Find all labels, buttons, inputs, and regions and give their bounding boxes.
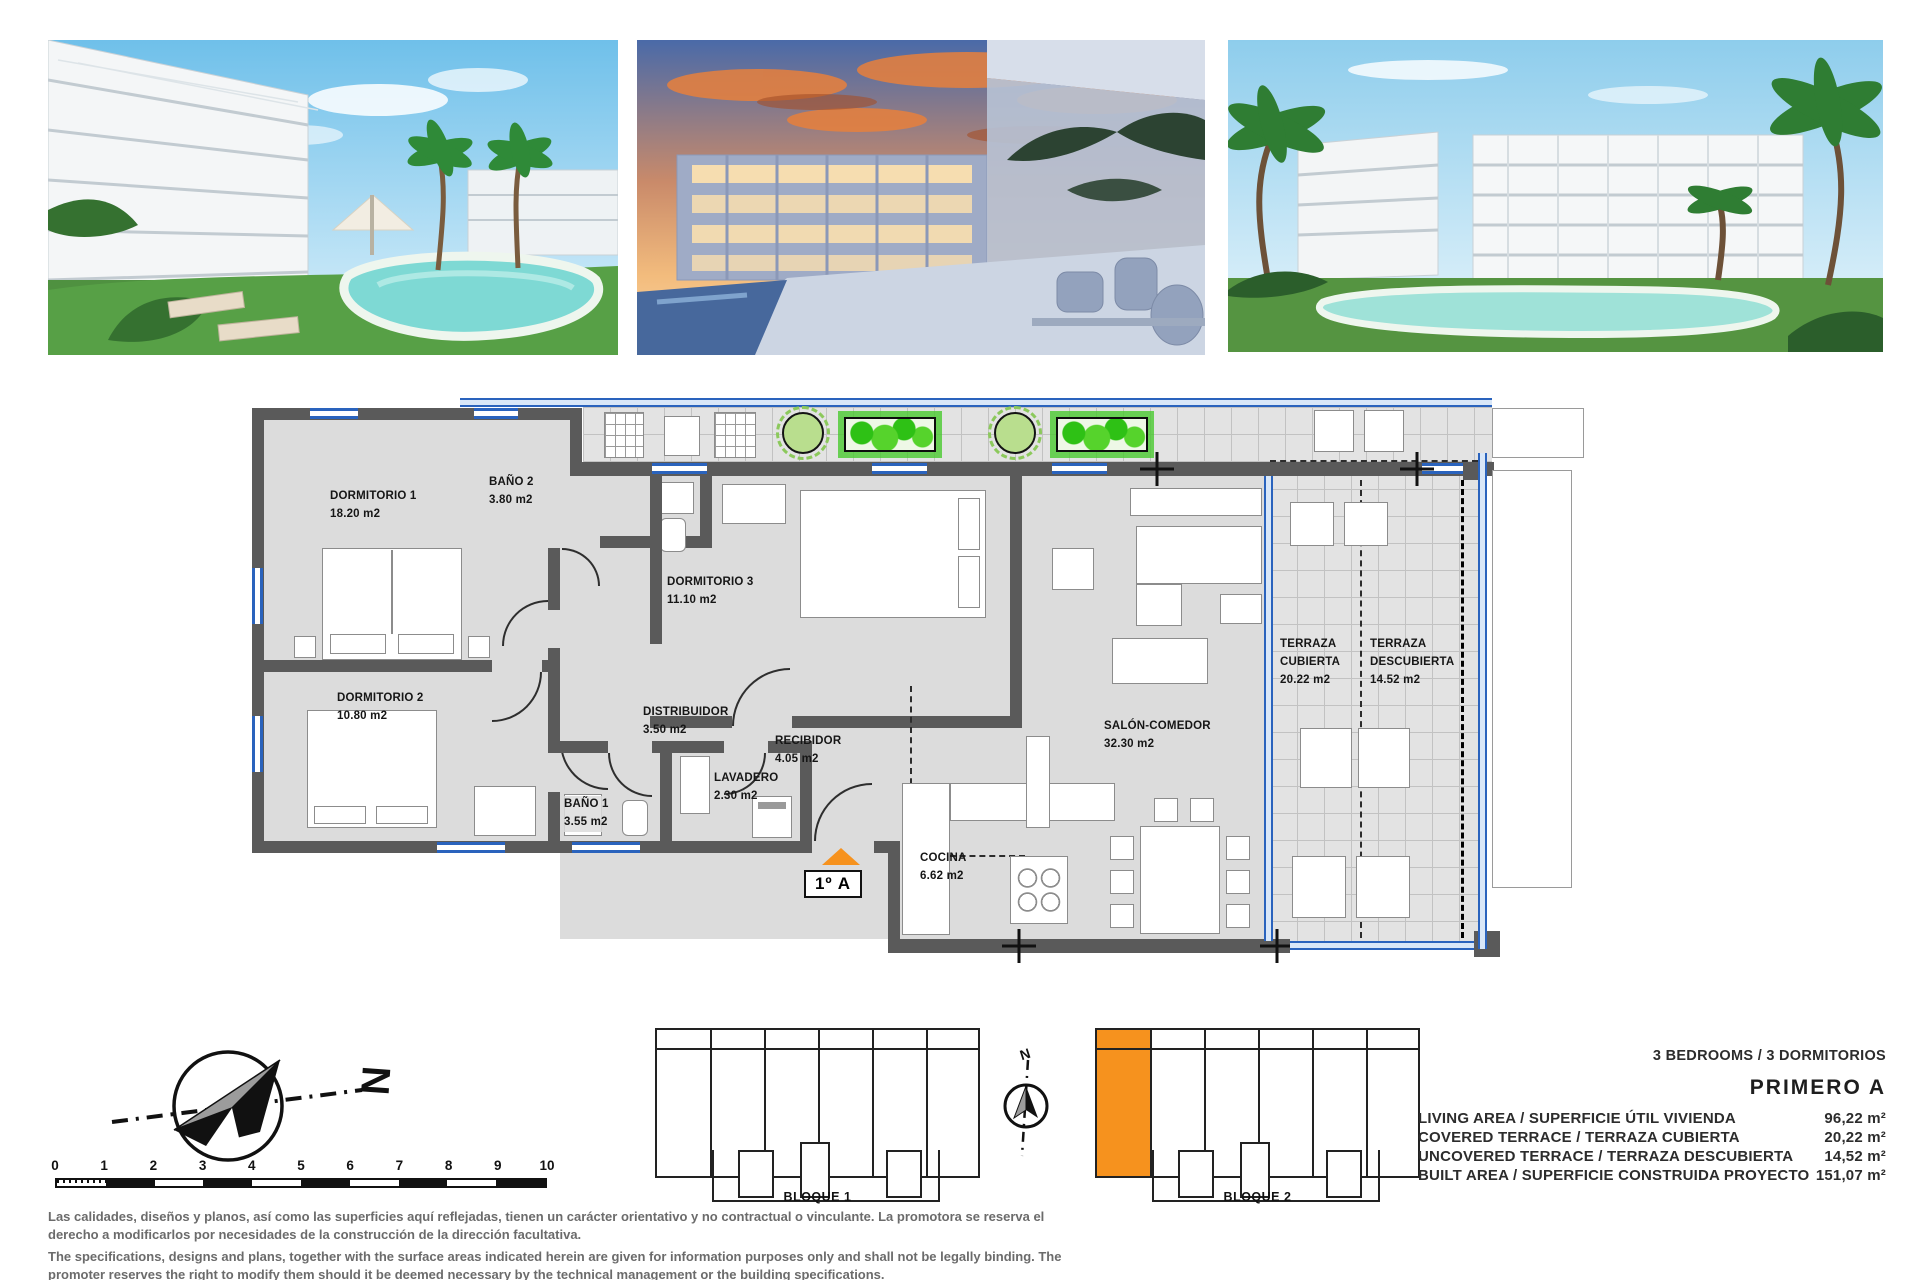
room-name: BAÑO 2 xyxy=(489,474,534,492)
window xyxy=(652,463,707,474)
wall-bath1-top xyxy=(548,741,608,753)
scale-bar-minor-ticks xyxy=(57,1180,106,1183)
tv-bench xyxy=(1026,736,1050,828)
specs-bedrooms-line: 3 BEDROOMS / 3 DORMITORIOS xyxy=(1418,1048,1886,1064)
room-area: 14.52 m2 xyxy=(1370,672,1454,690)
small-compass: N xyxy=(1002,1048,1050,1163)
room-label-recibidor: RECIBIDOR 4.05 m2 xyxy=(775,733,841,769)
column-marker xyxy=(1002,929,1036,963)
sofa-chaise xyxy=(1136,584,1182,626)
scale-tick: 2 xyxy=(150,1158,158,1173)
room-name-line2: CUBIERTA xyxy=(1280,654,1340,672)
room-name: DISTRIBUIDOR xyxy=(643,704,728,722)
photo-terrace-dusk-art xyxy=(637,40,1205,355)
dining-table xyxy=(1140,826,1220,934)
window xyxy=(474,408,518,419)
room-area: 18.20 m2 xyxy=(330,506,417,524)
terrace-table-set xyxy=(1300,728,1352,788)
wall-left xyxy=(252,408,264,853)
laundry-sink xyxy=(680,756,710,814)
room-name: TERRAZA xyxy=(1280,636,1340,654)
scale-tick: 5 xyxy=(297,1158,305,1173)
scale-bar-segment xyxy=(496,1180,545,1186)
room-name: BAÑO 1 xyxy=(564,796,609,814)
pillow xyxy=(958,556,980,608)
room-name: DORMITORIO 1 xyxy=(330,488,417,506)
pillow xyxy=(398,634,454,654)
dining-chair xyxy=(1154,798,1178,822)
scale-tick: 3 xyxy=(199,1158,207,1173)
terrace-lounger xyxy=(1356,856,1410,918)
legal-disclaimer: Las calidades, diseños y planos, así com… xyxy=(48,1208,1096,1280)
plant-pot xyxy=(994,412,1036,454)
vent-window xyxy=(572,842,640,853)
room-area: 4.05 m2 xyxy=(775,751,841,769)
wall-step xyxy=(570,408,582,476)
floor-plan: 1º A DORMITORIO 1 18.20 m2 xyxy=(252,398,1712,976)
scale-bar-segment xyxy=(106,1180,155,1186)
unit-label-box: 1º A xyxy=(804,870,862,898)
room-label-distribuidor: DISTRIBUIDOR 3.50 m2 xyxy=(643,704,728,740)
wall-kitchen-left xyxy=(888,841,900,953)
wardrobe-dorm2 xyxy=(474,786,536,836)
coffee-table xyxy=(1112,638,1208,684)
window xyxy=(1052,463,1107,474)
dining-chair xyxy=(1110,870,1134,894)
photo-terrace-dusk xyxy=(637,40,1205,355)
wall-bath2-right xyxy=(700,476,712,548)
dining-chair xyxy=(1226,904,1250,928)
terrace-chair xyxy=(1290,502,1334,546)
room-label-dormitorio1: DORMITORIO 1 18.20 m2 xyxy=(330,488,417,524)
terrace-chair xyxy=(1364,410,1404,452)
room-area: 6.62 m2 xyxy=(920,868,967,886)
block2-highlighted-unit xyxy=(1097,1030,1150,1176)
terrace-lounger xyxy=(1292,856,1346,918)
nightstand xyxy=(468,636,490,658)
scale-bar-track xyxy=(55,1178,547,1188)
nightstand xyxy=(294,636,316,658)
wall-dorm3-left xyxy=(650,476,662,644)
disclaimer-en: The specifications, designs and plans, t… xyxy=(48,1248,1096,1280)
armchair xyxy=(1052,548,1094,590)
wall-bottom-salon xyxy=(888,939,1290,953)
photo-pool-garden-day xyxy=(48,40,618,355)
scale-tick: 9 xyxy=(494,1158,502,1173)
specs-unit-title: PRIMERO A xyxy=(1418,1076,1886,1100)
wall-corridor-lower xyxy=(548,792,560,841)
room-label-terraza-cubierta: TERRAZA CUBIERTA 20.22 m2 xyxy=(1280,636,1340,689)
wall-lav-top xyxy=(672,741,724,753)
side-table xyxy=(1220,594,1262,624)
dining-chair xyxy=(1226,836,1250,860)
sideboard xyxy=(1130,488,1262,516)
room-name: RECIBIDOR xyxy=(775,733,841,751)
spec-label: COVERED TERRACE / TERRAZA CUBIERTA xyxy=(1418,1129,1740,1146)
room-area: 11.10 m2 xyxy=(667,592,754,610)
salon-glass-wall xyxy=(1264,476,1273,941)
sun-lounger xyxy=(604,412,644,458)
window xyxy=(252,716,263,772)
spec-row-covered-terrace: COVERED TERRACE / TERRAZA CUBIERTA 20,22… xyxy=(1418,1129,1886,1146)
compass-rose-art xyxy=(110,1020,390,1170)
planter-box xyxy=(844,417,936,452)
scale-tick: 4 xyxy=(248,1158,256,1173)
room-name-line2: DESCUBIERTA xyxy=(1370,654,1454,672)
room-area: 3.55 m2 xyxy=(564,814,609,832)
window xyxy=(310,408,358,419)
spec-label: LIVING AREA / SUPERFICIE ÚTIL VIVIENDA xyxy=(1418,1110,1736,1127)
room-area: 3.50 m2 xyxy=(643,722,728,740)
wall-dorm3-bottom xyxy=(792,716,1022,728)
window xyxy=(252,568,263,624)
block1-label: BLOQUE 1 xyxy=(655,1190,980,1204)
balcony-glass-top xyxy=(460,398,1492,407)
wall-top-left-wing xyxy=(252,408,582,420)
room-label-dormitorio3: DORMITORIO 3 11.10 m2 xyxy=(667,574,754,610)
room-area: 2.30 m2 xyxy=(714,788,778,806)
wall-corridor-upper xyxy=(548,648,560,672)
room-name: COCINA xyxy=(920,850,967,868)
bath1-sink xyxy=(622,800,648,836)
compass-rose: N xyxy=(110,1020,390,1175)
window xyxy=(872,463,927,474)
wall-dorm1-dorm2 xyxy=(264,660,492,672)
bed-split-line xyxy=(391,550,393,634)
spec-value: 151,07 m² xyxy=(1816,1167,1886,1184)
photo-buildings-pool-day-art xyxy=(1228,40,1883,352)
scale-bar-segment xyxy=(203,1180,252,1186)
scale-bar-segment xyxy=(301,1180,350,1186)
disclaimer-es: Las calidades, diseños y planos, así com… xyxy=(48,1208,1096,1245)
scale-tick: 8 xyxy=(445,1158,453,1173)
spec-value: 96,22 m² xyxy=(1824,1110,1886,1127)
wall-top-main xyxy=(582,462,1494,476)
room-label-bano2: BAÑO 2 3.80 m2 xyxy=(489,474,534,510)
spec-row-living-area: LIVING AREA / SUPERFICIE ÚTIL VIVIENDA 9… xyxy=(1418,1110,1886,1127)
terrace-chair xyxy=(1344,502,1388,546)
adjacent-structure xyxy=(1492,470,1572,888)
spec-row-uncovered-terrace: UNCOVERED TERRACE / TERRAZA DESCUBIERTA … xyxy=(1418,1148,1886,1165)
photo-buildings-pool-day xyxy=(1228,40,1883,352)
room-label-bano1: BAÑO 1 3.55 m2 xyxy=(564,796,609,832)
terrace-edge-dashed xyxy=(1461,480,1464,938)
bath2-toilet xyxy=(660,518,686,552)
dining-chair xyxy=(1226,870,1250,894)
room-label-dormitorio2: DORMITORIO 2 10.80 m2 xyxy=(337,690,424,726)
spec-label: UNCOVERED TERRACE / TERRAZA DESCUBIERTA xyxy=(1418,1148,1793,1165)
dining-chair xyxy=(1110,836,1134,860)
spec-row-built-area: BUILT AREA / SUPERFICIE CONSTRUIDA PROYE… xyxy=(1418,1167,1886,1184)
room-label-salon: SALÓN-COMEDOR 32.30 m2 xyxy=(1104,718,1211,754)
room-label-cocina: COCINA 6.62 m2 xyxy=(920,850,967,886)
sun-lounger xyxy=(714,412,756,458)
scale-tick: 10 xyxy=(539,1158,554,1173)
dining-chair xyxy=(1110,904,1134,928)
terrace-glass-bottom xyxy=(1290,941,1480,950)
entrance-triangle xyxy=(822,848,860,865)
photo-pool-garden-day-art xyxy=(48,40,618,355)
column-marker xyxy=(1400,452,1434,486)
small-compass-art xyxy=(1002,1048,1050,1158)
dining-chair xyxy=(1190,798,1214,822)
wall-corridor-upper xyxy=(548,548,560,610)
room-name: DORMITORIO 2 xyxy=(337,690,424,708)
pillow xyxy=(330,634,386,654)
terrace-table xyxy=(664,416,700,456)
spec-value: 14,52 m² xyxy=(1824,1148,1886,1165)
room-label-lavadero: LAVADERO 2.30 m2 xyxy=(714,770,778,806)
room-area: 10.80 m2 xyxy=(337,708,424,726)
wall-bottom-bedrooms xyxy=(252,841,812,853)
wall-corridor-lower xyxy=(548,672,560,742)
room-area: 32.30 m2 xyxy=(1104,736,1211,754)
compass-north-label: N xyxy=(351,1065,398,1097)
wall-bath1-right xyxy=(660,741,672,841)
room-name: DORMITORIO 3 xyxy=(667,574,754,592)
column-marker xyxy=(1140,452,1174,486)
pillow xyxy=(314,806,366,824)
room-area: 3.80 m2 xyxy=(489,492,534,510)
room-name: SALÓN-COMEDOR xyxy=(1104,718,1211,736)
pillow xyxy=(376,806,428,824)
room-name: TERRAZA xyxy=(1370,636,1454,654)
scale-tick: 6 xyxy=(346,1158,354,1173)
pillow xyxy=(958,498,980,550)
block2-label: BLOQUE 2 xyxy=(1095,1190,1420,1204)
scale-tick: 0 xyxy=(51,1158,59,1173)
planter-box xyxy=(1056,417,1148,452)
wardrobe-dorm3 xyxy=(722,484,786,524)
room-area: 20.22 m2 xyxy=(1280,672,1340,690)
scale-tick: 7 xyxy=(396,1158,404,1173)
room-name: LAVADERO xyxy=(714,770,778,788)
scale-bar-segment xyxy=(399,1180,448,1186)
vent-window xyxy=(437,842,505,853)
scale-tick: 1 xyxy=(100,1158,108,1173)
spec-label: BUILT AREA / SUPERFICIE CONSTRUIDA PROYE… xyxy=(1418,1167,1809,1184)
wall-dorm3-right xyxy=(1010,476,1022,728)
adjacent-structure xyxy=(1492,408,1584,458)
sofa xyxy=(1136,526,1262,584)
room-label-terraza-descubierta: TERRAZA DESCUBIERTA 14.52 m2 xyxy=(1370,636,1454,689)
terrace-chair xyxy=(1314,410,1354,452)
plant-pot xyxy=(782,412,824,454)
terrace-glass-right xyxy=(1478,453,1487,949)
hob-burners xyxy=(1016,866,1062,914)
spec-value: 20,22 m² xyxy=(1824,1129,1886,1146)
unit-label: 1º A xyxy=(815,874,851,894)
scale-bar: 0 1 2 3 4 5 6 7 8 9 10 xyxy=(55,1158,547,1194)
terrace-table-set xyxy=(1358,728,1410,788)
